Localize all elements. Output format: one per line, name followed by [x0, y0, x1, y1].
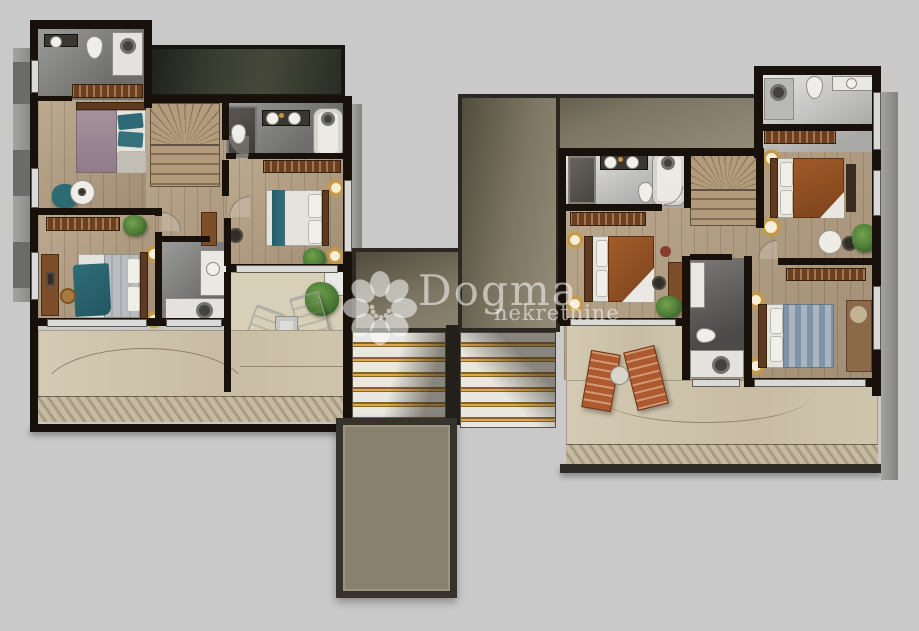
- bedroom-b1-bench: [846, 164, 856, 212]
- wall: [754, 66, 880, 75]
- window: [873, 170, 881, 216]
- window: [873, 92, 881, 150]
- window: [692, 379, 740, 387]
- right-terrace-side-table: [610, 366, 629, 385]
- bathroom-b2-shower-head: [770, 84, 787, 101]
- bathroom-b3-shower-head: [712, 356, 730, 374]
- bedroom-b2-bed-headboard: [584, 236, 593, 302]
- wall: [690, 254, 732, 260]
- bedroom-b3-wardrobe: [786, 268, 866, 281]
- wall: [754, 66, 763, 158]
- bathroom-b1-faucet: [618, 157, 623, 162]
- bedroom-b3-pillow: [770, 336, 783, 362]
- bathroom-b1-sink: [604, 156, 617, 169]
- window: [873, 286, 881, 350]
- bedroom-b1-wardrobe: [764, 130, 836, 144]
- bedroom-b2-desk-chair: [652, 276, 666, 290]
- bedroom-b3-pillow: [770, 308, 783, 334]
- bedroom-b2-sconce: [567, 296, 583, 312]
- wall: [758, 124, 876, 131]
- bathroom-b1-shower-glass: [568, 156, 596, 204]
- right-staircase-steps: [690, 190, 760, 226]
- bathroom-b2-sink: [846, 78, 857, 89]
- wall: [744, 256, 752, 380]
- floor-plan-image: Dogma nekretnine: [0, 0, 919, 631]
- right-roof-column: [458, 94, 560, 332]
- bedroom-b1-side-table: [818, 230, 842, 254]
- window: [754, 379, 866, 387]
- bedroom-b3-bed-headboard: [758, 304, 767, 368]
- bedroom-b1-bed-headboard: [770, 158, 778, 218]
- bedroom-b3-bench-cushion: [850, 306, 867, 323]
- wall: [684, 150, 691, 208]
- bedroom-b1-pillow: [780, 162, 793, 187]
- bedroom-b2-decor-red: [660, 246, 671, 257]
- wall: [778, 258, 876, 265]
- bathroom-b1-sink: [626, 156, 639, 169]
- wall: [558, 148, 566, 324]
- bedroom-b2-sconce: [567, 232, 583, 248]
- wall: [560, 464, 881, 473]
- bathroom-b1-tub-faucet: [661, 156, 675, 170]
- right-unit-plan: [0, 0, 919, 631]
- wall: [560, 204, 662, 211]
- bathroom-b3-vanity: [690, 262, 705, 308]
- wall: [756, 148, 764, 228]
- bedroom-b2-pillow: [596, 270, 608, 297]
- bedroom-b3-duvet-striped: [783, 304, 834, 368]
- bedroom-b2-plant: [656, 296, 682, 318]
- right-staircase-winders: [690, 152, 760, 190]
- bedroom-b1-pendant: [762, 218, 780, 236]
- bedroom-b2-pillow: [596, 240, 608, 267]
- bedroom-b1-pillow: [780, 190, 793, 215]
- french-door: [570, 319, 676, 326]
- wall: [560, 148, 764, 156]
- right-terrace-deck: [566, 444, 878, 464]
- bedroom-b2-wardrobe: [570, 212, 646, 226]
- right-outer-ledge: [881, 92, 898, 480]
